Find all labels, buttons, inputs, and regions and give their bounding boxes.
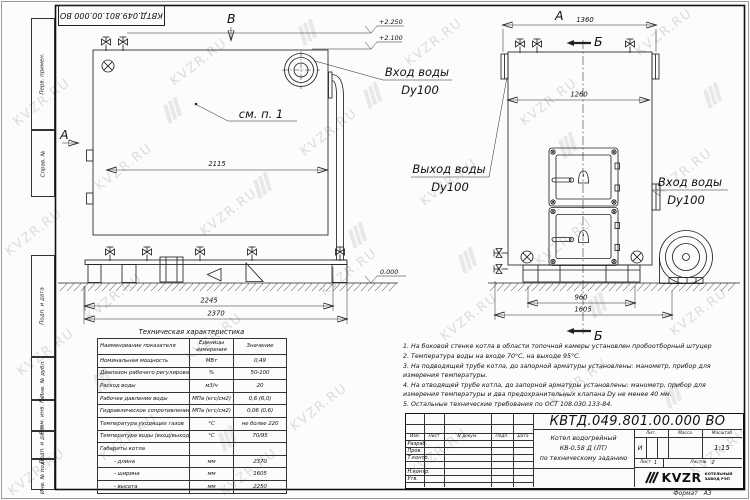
cell: 2250	[234, 480, 287, 493]
valve-icon	[516, 39, 525, 53]
cell: 20	[234, 380, 287, 393]
drain-valve-icon	[494, 265, 508, 274]
lit-value: И	[634, 437, 646, 458]
mass-label: Масса	[668, 429, 702, 437]
col-sign: Подп.	[491, 433, 513, 440]
cell: Расход воды	[98, 380, 190, 393]
outlet-pipe-front	[329, 72, 348, 260]
cell: 0,06 (0,6)	[234, 405, 287, 418]
stamp-label: Инв. № дубл.	[40, 360, 46, 398]
view-marker-b: В	[227, 11, 236, 26]
valve-icon	[143, 247, 152, 261]
fan-blower	[660, 231, 713, 284]
col-header: Наименование показателя	[98, 339, 190, 355]
title-block-doc-number: КВТД.049.801.00.000 ВО	[533, 414, 742, 429]
section-marker-b-top: Б	[594, 34, 603, 49]
format-label: ФорматА3	[640, 490, 745, 497]
cell: мм	[190, 480, 234, 493]
ground-hatch	[60, 284, 396, 292]
valve-icon	[533, 39, 542, 53]
cell: 0,49	[234, 355, 287, 368]
spec-table-title: Техническая характеристика	[97, 328, 286, 336]
sling-point-icon	[521, 251, 533, 263]
base-frame-front	[85, 257, 347, 283]
furnace-door-upper	[549, 148, 620, 206]
valve-icon	[196, 247, 205, 261]
cell: 2370	[234, 455, 287, 468]
dim-front-inner: 2115	[208, 160, 225, 168]
technical-notes: 1. На боковой стенке котла в области топ…	[403, 343, 737, 411]
stamp-podp-data-2: Подп. и дата	[31, 431, 55, 459]
table-row: Габариты котла	[98, 443, 287, 456]
spec-table: Наименование показателя Еденицы измерени…	[97, 338, 287, 494]
cell: МПа (кгс/см2)	[190, 405, 234, 418]
table-row: Номинальная мощностьМВт0,49	[98, 355, 287, 368]
stamp-label: Инв. № подл.	[40, 456, 46, 494]
cell	[190, 443, 234, 456]
table-row: Гидравлическое сопротивление котлаМПа (к…	[98, 405, 287, 418]
valve-icon	[102, 37, 111, 51]
labels: см. п. 1 Вход воды Dy100 Выход воды Dy10…	[195, 61, 728, 207]
dim-side-base: 960	[575, 294, 588, 302]
cell: Гидравлическое сопротивление котла	[98, 405, 190, 418]
stamp-inv-dubl: Инв. № дубл.	[31, 357, 55, 400]
table-row: Диапазон рабочего регулирования%50-100	[98, 367, 287, 380]
cell: Габариты котла	[98, 443, 190, 456]
product-name-line: КВ-0,58 Д (ЛТ)	[560, 444, 608, 454]
sheets-cell: Листов 2	[663, 458, 742, 467]
base-frame-side	[523, 265, 640, 282]
view-markers: В А А Б Б	[59, 8, 603, 343]
row-ncontrol: Н.контр.	[408, 469, 430, 475]
water-inlet-size-side: Dy100	[667, 193, 705, 207]
water-outlet-label: Выход воды	[412, 162, 485, 176]
title-block: КВТД.049.801.00.000 ВО Изм. Лист N докум…	[405, 413, 744, 489]
cell: %	[190, 367, 234, 380]
cell: МВт	[190, 355, 234, 368]
doc-number-top-box: КВТД.049.801.00.000 ВО	[58, 5, 165, 26]
scale-value: 1:15	[702, 437, 742, 458]
section-marker-b-bottom: Б	[594, 328, 603, 343]
pump-unit	[160, 257, 183, 282]
drain-valve-icon	[494, 249, 508, 258]
cell: мм	[190, 455, 234, 468]
sling-point-icon	[102, 60, 114, 72]
stamp-label: Справ. №	[40, 150, 46, 177]
row-approved: Утв.	[408, 476, 419, 482]
cell: 50-100	[234, 367, 287, 380]
dim-front-outer: 2370	[207, 310, 224, 318]
drawing-sheet: KVZR.RU KVZR.RU KVZR.RU KVZR.RU KVZR.RU …	[0, 0, 750, 500]
cell	[234, 443, 287, 456]
dim-side-top: 1360	[576, 16, 593, 24]
cell: Диапазон рабочего регулирования	[98, 367, 190, 380]
cell: МПа (кгс/см2)	[190, 392, 234, 405]
product-name: Котел водогрейный КВ-0,58 Д (ЛТ) по техн…	[533, 430, 634, 468]
side-stub	[87, 150, 94, 161]
side-stub	[87, 193, 94, 204]
sheets-label: Листов	[690, 460, 706, 465]
table-row: Температура воды (вход/выход)°С70/95	[98, 430, 287, 443]
col-list: Лист	[424, 433, 444, 440]
row-checked: Пров.	[408, 448, 423, 454]
valve-icon	[119, 37, 128, 51]
table-row: Расход водым3/ч20	[98, 380, 287, 393]
sling-point-icon	[631, 251, 643, 263]
product-name-line: по техническому заданию	[540, 454, 628, 464]
elevation-zero: 0.000	[380, 268, 398, 276]
note-item: 5. Остальные технические требования по О…	[403, 401, 737, 410]
table-row: - длинамм2370	[98, 455, 287, 468]
note-item: 3. На подводящей трубе котла, до запорно…	[403, 363, 737, 381]
cell: 1605	[234, 468, 287, 481]
cell: м3/ч	[190, 380, 234, 393]
cell: Номинальная мощность	[98, 355, 190, 368]
table-header-row: Наименование показателя Еденицы измерени…	[98, 339, 287, 355]
dimensions: 2115 2245 2370 1360 1260 960 1605	[84, 16, 672, 324]
water-inlet-label-side: Вход воды	[658, 175, 722, 189]
stamp-label: Перв. примен.	[40, 53, 46, 94]
cell: 70/95	[234, 430, 287, 443]
note-item: 2. Температура воды на входе 70°С, на вы…	[403, 353, 737, 362]
format-value: А3	[704, 490, 712, 497]
inlet-flange-front	[282, 51, 320, 89]
row-developed: Разраб.	[408, 441, 428, 447]
water-inlet-size-front: Dy100	[401, 83, 439, 97]
col-doc: N докум.	[444, 433, 491, 440]
sheets-value: 2	[711, 460, 714, 466]
row-tcontrol: Т.контр.	[408, 455, 430, 461]
water-outlet-size: Dy100	[431, 180, 469, 194]
table-row: - высотамм2250	[98, 480, 287, 493]
table-row: - ширинамм1605	[98, 468, 287, 481]
dim-side-skid: 1605	[574, 306, 591, 314]
support-bracket	[246, 263, 263, 282]
company-name: КОТЕЛЬНЫЙ ЗАВОД РЭП	[705, 472, 733, 482]
cell: - высота	[98, 480, 190, 493]
note-item: 1. На боковой стенке котла в области топ…	[403, 343, 737, 352]
cell: 0,6 (6,0)	[234, 392, 287, 405]
cell: °С	[190, 430, 234, 443]
cell: °С	[190, 417, 234, 430]
lit-label: Лит.	[634, 429, 668, 437]
valve-icon	[626, 39, 635, 53]
cell: - ширина	[98, 468, 190, 481]
dim-side-inner: 1260	[570, 91, 587, 99]
cell: мм	[190, 468, 234, 481]
stamp-label: Подп. и дата	[40, 287, 46, 324]
water-inlet-label-front: Вход воды	[385, 65, 449, 79]
boiler-body-front	[93, 50, 328, 235]
see-note-label: см. п. 1	[239, 107, 283, 121]
cell: не более 220	[234, 417, 287, 430]
cell: - длина	[98, 455, 190, 468]
valve-icon	[106, 247, 115, 261]
sheet-cell: Лист 1	[634, 458, 663, 467]
scale-label: Масштаб	[702, 429, 742, 437]
format-word: Формат	[673, 490, 697, 497]
valve-icon	[248, 247, 257, 261]
stamp-perv-primen: Перв. примен.	[31, 18, 55, 130]
stamp-podp-data-1: Подп. и дата	[31, 255, 55, 357]
ground-hatch	[490, 284, 735, 292]
cell: Температура воды (вход/выход)	[98, 430, 190, 443]
elevation-marks: +2.250 +2.100 0.000	[127, 18, 406, 283]
col-date: Дата	[513, 433, 533, 440]
product-name-line: Котел водогрейный	[550, 434, 616, 444]
cell: Рабочее давление воды	[98, 392, 190, 405]
doc-number-top: КВТД.049.801.00.000 ВО	[60, 11, 163, 20]
elevation-mid: +2.100	[379, 34, 403, 42]
note-item: 4. На отводящей трубе котла, до запорной…	[403, 382, 737, 400]
kvzr-logo-icon	[644, 471, 659, 484]
stamp-sprav-no: Справ. №	[31, 130, 55, 197]
company-name-line: ЗАВОД РЭП	[705, 476, 730, 481]
company-logo: KVZR КОТЕЛЬНЫЙ ЗАВОД РЭП	[634, 467, 742, 487]
col-izm: Изм.	[406, 433, 424, 440]
view-marker-a-side: А	[554, 8, 564, 23]
front-view	[58, 37, 398, 291]
burner-cone	[208, 269, 222, 282]
cell: Температура уходящих газов	[98, 417, 190, 430]
furnace-door-lower	[549, 208, 620, 266]
outlet-flange-side	[501, 54, 508, 79]
sheet-value: 1	[654, 460, 657, 466]
col-header: Значение	[234, 339, 287, 355]
table-row: Рабочее давление водыМПа (кгс/см2)0,6 (6…	[98, 392, 287, 405]
table-row: Температура уходящих газов°Сне более 220	[98, 417, 287, 430]
spec-table-section: Техническая характеристика Наименование …	[97, 328, 286, 494]
col-header: Еденицы измерения	[190, 339, 234, 355]
view-marker-a: А	[59, 127, 69, 142]
elevation-top: +2.250	[379, 18, 403, 26]
logo-text: KVZR	[662, 470, 702, 485]
sheet-label: Лист	[640, 460, 651, 465]
top-flange-side	[652, 54, 659, 79]
stamp-inv-podl: Инв. № подл.	[31, 459, 55, 490]
dim-front-mid: 2245	[200, 297, 217, 305]
